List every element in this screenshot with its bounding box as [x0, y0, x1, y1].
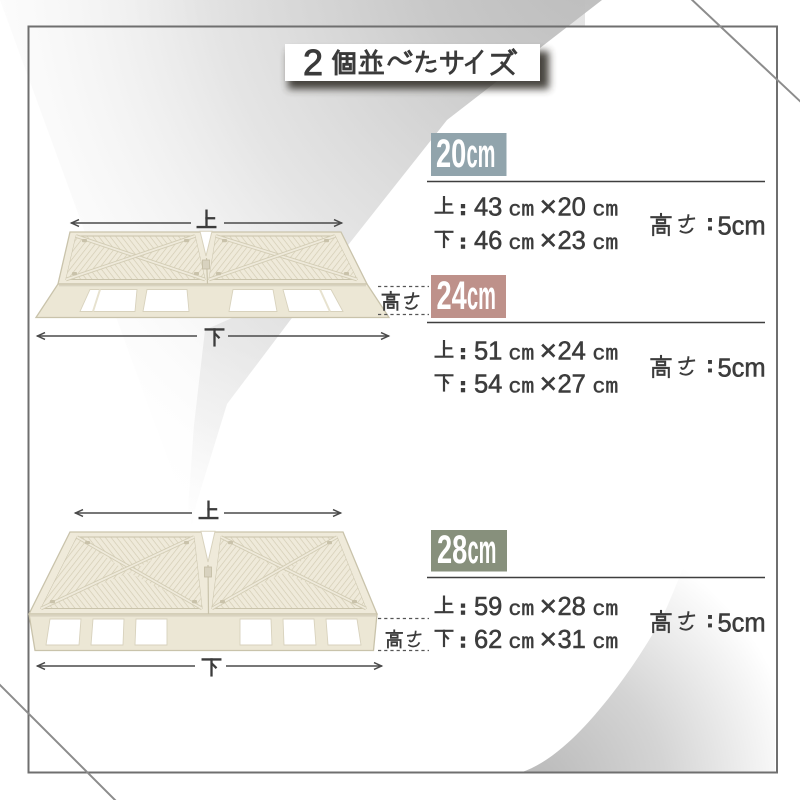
svg-text:cm: cm	[509, 232, 535, 256]
svg-text:27: 27	[558, 371, 586, 399]
svg-text:28: 28	[558, 593, 586, 621]
svg-text:cm: cm	[509, 631, 535, 655]
svg-text:cm: cm	[593, 598, 619, 622]
svg-text:×: ×	[540, 368, 558, 401]
svg-text:20: 20	[558, 194, 586, 222]
svg-text:24: 24	[558, 338, 586, 366]
svg-text:×: ×	[540, 590, 558, 623]
svg-text:cm: cm	[593, 631, 619, 655]
svg-text:cm: cm	[509, 343, 535, 367]
svg-text:cm: cm	[467, 130, 496, 176]
svg-text:20: 20	[436, 132, 466, 176]
svg-text:×: ×	[540, 335, 558, 368]
svg-text:24: 24	[437, 274, 467, 318]
svg-text:cm: cm	[509, 376, 535, 400]
svg-text:31: 31	[558, 626, 586, 654]
svg-text:28: 28	[437, 528, 467, 572]
svg-text:×: ×	[540, 224, 558, 257]
svg-text:cm: cm	[593, 343, 619, 367]
svg-text:2: 2	[303, 42, 323, 83]
svg-text:cm: cm	[593, 376, 619, 400]
svg-text:cm: cm	[593, 232, 619, 256]
svg-text:5cm: 5cm	[718, 213, 766, 241]
svg-text:cm: cm	[593, 199, 619, 223]
svg-text:5cm: 5cm	[718, 355, 766, 383]
svg-text:51: 51	[474, 338, 502, 366]
svg-text:62: 62	[474, 626, 502, 654]
svg-text:5cm: 5cm	[718, 610, 766, 638]
svg-text:cm: cm	[468, 526, 497, 572]
svg-text:cm: cm	[509, 199, 535, 223]
svg-text:×: ×	[540, 191, 558, 224]
svg-text:59: 59	[474, 593, 502, 621]
svg-text:cm: cm	[509, 598, 535, 622]
svg-text:cm: cm	[467, 272, 496, 318]
svg-text:46: 46	[474, 227, 502, 255]
svg-text:23: 23	[558, 227, 586, 255]
svg-text:×: ×	[540, 623, 558, 656]
svg-text:54: 54	[474, 371, 502, 399]
svg-text:43: 43	[474, 194, 502, 222]
